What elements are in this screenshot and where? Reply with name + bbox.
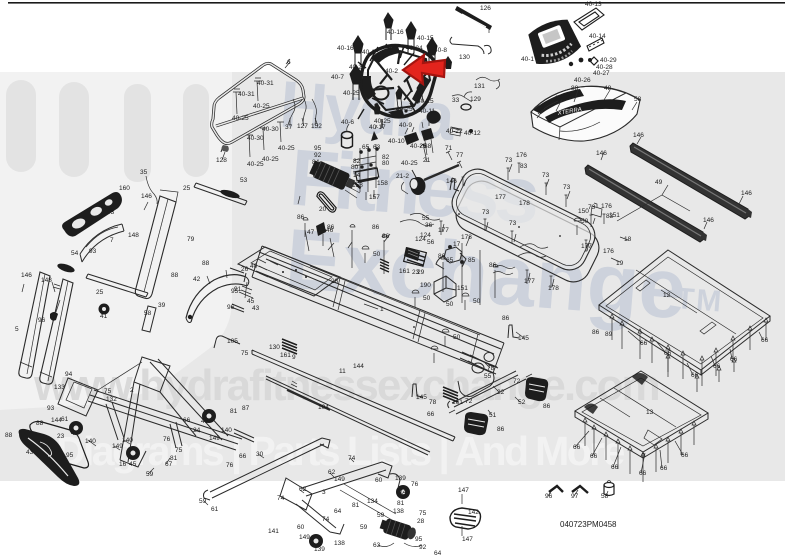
svg-text:144: 144 — [353, 363, 364, 370]
svg-text:78: 78 — [429, 399, 437, 406]
svg-text:42: 42 — [193, 276, 201, 283]
svg-text:140: 140 — [122, 437, 133, 444]
svg-text:40-24: 40-24 — [349, 64, 366, 71]
svg-text:75: 75 — [104, 388, 112, 395]
svg-text:52: 52 — [518, 399, 526, 406]
svg-text:20: 20 — [319, 206, 327, 213]
svg-text:63: 63 — [373, 144, 381, 151]
svg-text:40-15: 40-15 — [417, 35, 434, 42]
svg-text:40-29: 40-29 — [600, 57, 617, 64]
svg-text:141: 141 — [268, 528, 279, 535]
svg-text:50: 50 — [581, 218, 589, 225]
svg-text:161: 161 — [399, 268, 410, 275]
svg-text:88: 88 — [202, 260, 210, 267]
svg-text:65: 65 — [446, 257, 454, 264]
svg-text:33: 33 — [452, 97, 460, 104]
svg-text:75: 75 — [241, 350, 249, 357]
svg-text:88: 88 — [537, 105, 545, 112]
svg-text:9: 9 — [292, 354, 296, 361]
svg-text:27: 27 — [312, 166, 320, 173]
svg-text:81: 81 — [230, 408, 238, 415]
svg-text:55: 55 — [484, 373, 492, 380]
svg-text:61: 61 — [211, 506, 219, 513]
svg-text:75: 75 — [419, 510, 427, 517]
svg-text:59: 59 — [360, 524, 368, 531]
svg-text:40-15: 40-15 — [362, 49, 379, 56]
svg-text:40-30: 40-30 — [247, 135, 264, 142]
svg-text:66: 66 — [664, 350, 672, 357]
svg-text:84: 84 — [312, 159, 320, 166]
svg-text:45: 45 — [201, 418, 209, 425]
svg-text:150: 150 — [578, 208, 589, 215]
svg-text:22: 22 — [497, 389, 505, 396]
svg-text:178: 178 — [519, 200, 530, 207]
svg-text:40-9: 40-9 — [399, 122, 412, 129]
svg-text:40-25: 40-25 — [401, 160, 418, 167]
svg-text:5: 5 — [15, 326, 19, 333]
svg-text:40-31: 40-31 — [238, 91, 255, 98]
svg-text:16: 16 — [119, 461, 127, 468]
svg-text:43: 43 — [252, 305, 260, 312]
svg-text:126: 126 — [480, 5, 491, 12]
svg-text:26: 26 — [241, 266, 249, 273]
svg-text:58: 58 — [144, 310, 152, 317]
svg-text:40-7: 40-7 — [331, 74, 344, 81]
svg-text:50: 50 — [446, 301, 454, 308]
svg-text:50: 50 — [453, 334, 461, 341]
svg-text:40-25: 40-25 — [343, 90, 360, 97]
svg-text:66: 66 — [761, 337, 769, 344]
svg-text:3: 3 — [322, 489, 326, 496]
svg-text:93: 93 — [89, 248, 97, 255]
svg-text:92: 92 — [419, 544, 427, 551]
svg-text:151: 151 — [457, 285, 468, 292]
svg-text:88: 88 — [571, 85, 579, 92]
svg-text:37: 37 — [285, 124, 293, 131]
svg-text:146: 146 — [633, 132, 644, 139]
svg-text:95: 95 — [66, 452, 74, 459]
svg-text:50: 50 — [473, 298, 481, 305]
svg-text:148: 148 — [128, 232, 139, 239]
svg-text:45: 45 — [71, 430, 79, 437]
svg-text:54: 54 — [71, 250, 79, 257]
svg-text:76: 76 — [226, 462, 234, 469]
svg-text:40-6: 40-6 — [341, 119, 354, 126]
svg-text:96: 96 — [38, 317, 46, 324]
svg-text:66: 66 — [183, 417, 191, 424]
svg-text:040723PM0458: 040723PM0458 — [560, 520, 617, 529]
svg-text:50: 50 — [373, 251, 381, 258]
svg-text:12: 12 — [663, 292, 671, 299]
svg-text:66: 66 — [590, 453, 598, 460]
svg-text:21-2: 21-2 — [396, 173, 409, 180]
svg-text:65: 65 — [362, 144, 370, 151]
svg-text:62: 62 — [299, 486, 307, 493]
svg-text:13: 13 — [646, 409, 654, 416]
svg-text:40-22: 40-22 — [446, 128, 463, 135]
svg-text:177: 177 — [524, 278, 535, 285]
svg-text:86: 86 — [592, 329, 600, 336]
svg-text:14: 14 — [353, 172, 361, 179]
svg-text:72: 72 — [513, 378, 521, 385]
svg-text:86: 86 — [372, 224, 380, 231]
svg-text:85: 85 — [468, 257, 476, 264]
svg-text:63: 63 — [373, 542, 381, 549]
svg-text:160: 160 — [119, 185, 130, 192]
svg-text:43: 43 — [26, 449, 34, 456]
svg-text:73: 73 — [509, 220, 517, 227]
svg-text:40-11: 40-11 — [419, 108, 436, 115]
svg-text:104: 104 — [318, 404, 329, 411]
svg-text:86: 86 — [489, 262, 497, 269]
svg-text:60: 60 — [375, 477, 383, 484]
svg-text:40-17: 40-17 — [369, 124, 386, 131]
svg-text:40-25: 40-25 — [396, 106, 413, 113]
svg-text:95: 95 — [231, 288, 239, 295]
svg-text:88: 88 — [424, 143, 432, 150]
svg-text:47: 47 — [307, 229, 315, 236]
svg-text:1: 1 — [380, 306, 384, 313]
svg-text:64: 64 — [434, 550, 442, 557]
svg-text:93: 93 — [47, 405, 55, 412]
svg-text:86: 86 — [382, 233, 390, 240]
svg-text:72: 72 — [465, 398, 473, 405]
svg-text:29: 29 — [417, 269, 425, 276]
svg-text:74: 74 — [277, 495, 285, 502]
svg-text:40-8: 40-8 — [434, 47, 447, 54]
svg-text:23: 23 — [57, 433, 65, 440]
svg-text:59: 59 — [146, 471, 154, 478]
svg-text:146: 146 — [596, 150, 607, 157]
svg-text:133: 133 — [54, 384, 65, 391]
svg-text:88: 88 — [171, 272, 179, 279]
svg-text:74: 74 — [322, 516, 330, 523]
svg-text:58: 58 — [634, 96, 642, 103]
svg-text:73: 73 — [563, 184, 571, 191]
svg-text:149: 149 — [334, 476, 345, 483]
svg-text:40-16: 40-16 — [337, 45, 354, 52]
svg-text:46: 46 — [326, 227, 334, 234]
svg-text:40-1: 40-1 — [521, 56, 534, 63]
svg-text:96: 96 — [545, 493, 553, 500]
svg-text:56: 56 — [427, 239, 435, 246]
svg-text:80: 80 — [382, 160, 390, 167]
svg-text:40-10: 40-10 — [388, 138, 405, 145]
svg-text:53: 53 — [240, 177, 248, 184]
svg-text:66: 66 — [681, 452, 689, 459]
svg-text:66: 66 — [730, 356, 738, 363]
svg-text:78: 78 — [487, 365, 495, 372]
svg-text:40: 40 — [250, 263, 258, 270]
svg-text:158: 158 — [352, 182, 363, 189]
svg-text:105: 105 — [227, 338, 238, 345]
svg-text:66: 66 — [640, 340, 648, 347]
svg-text:158: 158 — [377, 180, 388, 187]
svg-text:60: 60 — [297, 524, 305, 531]
svg-text:58: 58 — [601, 493, 609, 500]
svg-text:64: 64 — [334, 508, 342, 515]
svg-text:178: 178 — [461, 234, 472, 241]
svg-text:177: 177 — [495, 194, 506, 201]
svg-text:94: 94 — [65, 371, 73, 378]
svg-text:74: 74 — [399, 489, 407, 496]
svg-text:25: 25 — [96, 289, 104, 296]
svg-text:97: 97 — [571, 493, 579, 500]
svg-text:73: 73 — [482, 209, 490, 216]
svg-text:127: 127 — [297, 123, 308, 130]
svg-text:25: 25 — [183, 185, 191, 192]
svg-text:66: 66 — [639, 470, 647, 477]
svg-text:21: 21 — [423, 157, 431, 164]
svg-text:66: 66 — [691, 372, 699, 379]
svg-text:81: 81 — [352, 502, 360, 509]
svg-text:139: 139 — [314, 546, 325, 553]
svg-text:177: 177 — [581, 243, 592, 250]
svg-text:28: 28 — [331, 278, 339, 285]
svg-text:17: 17 — [453, 241, 461, 248]
svg-text:190: 190 — [420, 282, 431, 289]
svg-text:50: 50 — [423, 295, 431, 302]
svg-text:130: 130 — [459, 54, 470, 61]
svg-text:138: 138 — [334, 540, 345, 547]
svg-text:TM: TM — [675, 282, 725, 319]
svg-text:77: 77 — [456, 152, 464, 159]
svg-text:93: 93 — [107, 209, 115, 216]
svg-text:88: 88 — [5, 432, 13, 439]
svg-text:40-25: 40-25 — [417, 98, 434, 105]
svg-text:81: 81 — [170, 455, 178, 462]
svg-text:142: 142 — [468, 509, 479, 516]
svg-text:35: 35 — [140, 169, 148, 176]
svg-text:Diagrams | Parts Lists | And M: Diagrams | Parts Lists | And More — [56, 428, 625, 474]
svg-text:55: 55 — [422, 215, 430, 222]
svg-text:146: 146 — [446, 178, 457, 185]
svg-text:176: 176 — [601, 203, 612, 210]
svg-text:76: 76 — [163, 436, 171, 443]
svg-text:62: 62 — [328, 469, 336, 476]
svg-text:11: 11 — [339, 368, 346, 375]
svg-text:80: 80 — [351, 164, 359, 171]
svg-text:86: 86 — [543, 403, 551, 410]
svg-text:147: 147 — [458, 487, 469, 494]
svg-text:86: 86 — [497, 426, 505, 433]
svg-text:40-13: 40-13 — [585, 1, 602, 8]
svg-text:51: 51 — [489, 412, 497, 419]
svg-text:66: 66 — [427, 411, 435, 418]
svg-text:40-25: 40-25 — [262, 156, 279, 163]
svg-text:59: 59 — [199, 498, 207, 505]
svg-text:40-24: 40-24 — [406, 45, 423, 52]
svg-text:75: 75 — [175, 447, 183, 454]
svg-text:176: 176 — [603, 248, 614, 255]
svg-text:177: 177 — [438, 227, 449, 234]
svg-text:95: 95 — [415, 536, 423, 543]
svg-text:88: 88 — [36, 420, 44, 427]
svg-text:39: 39 — [158, 302, 166, 309]
svg-text:138: 138 — [393, 508, 404, 515]
svg-text:73: 73 — [542, 172, 550, 179]
svg-text:139: 139 — [395, 475, 406, 482]
svg-text:40-26: 40-26 — [574, 77, 591, 84]
svg-text:18: 18 — [624, 236, 632, 243]
svg-text:151: 151 — [609, 212, 620, 219]
svg-text:40-27: 40-27 — [593, 70, 610, 77]
svg-text:66: 66 — [611, 464, 619, 471]
svg-text:145: 145 — [518, 335, 529, 342]
svg-text:66: 66 — [573, 444, 581, 451]
svg-text:30: 30 — [256, 451, 264, 458]
svg-text:147: 147 — [462, 536, 473, 543]
svg-text:87: 87 — [242, 405, 250, 412]
svg-text:2: 2 — [130, 387, 134, 394]
svg-text:66: 66 — [713, 363, 721, 370]
svg-text:36: 36 — [425, 222, 433, 229]
svg-text:7: 7 — [110, 237, 114, 244]
svg-text:61: 61 — [61, 416, 69, 423]
svg-text:45: 45 — [129, 461, 137, 468]
svg-text:49: 49 — [655, 179, 663, 186]
svg-text:73: 73 — [505, 157, 513, 164]
svg-text:79: 79 — [187, 236, 195, 243]
svg-text:66: 66 — [660, 465, 668, 472]
svg-text:149: 149 — [209, 435, 220, 442]
svg-text:128: 128 — [216, 157, 227, 164]
svg-text:40-16: 40-16 — [387, 29, 404, 36]
svg-text:96: 96 — [227, 304, 235, 311]
svg-text:41: 41 — [100, 313, 108, 320]
svg-text:146: 146 — [21, 272, 32, 279]
svg-text:130: 130 — [269, 344, 280, 351]
svg-text:140: 140 — [221, 427, 232, 434]
svg-text:146: 146 — [703, 217, 714, 224]
svg-text:48: 48 — [604, 85, 612, 92]
svg-text:149: 149 — [112, 443, 123, 450]
svg-text:88: 88 — [555, 95, 563, 102]
svg-text:134: 134 — [367, 498, 378, 505]
svg-text:152: 152 — [311, 123, 322, 130]
svg-text:73: 73 — [588, 204, 596, 211]
svg-text:40-25: 40-25 — [253, 103, 270, 110]
svg-text:146: 146 — [741, 190, 752, 197]
svg-text:40-30: 40-30 — [262, 126, 279, 133]
svg-text:81: 81 — [397, 500, 405, 507]
svg-text:www.hydrafitnessexchange.com: www.hydrafitnessexchange.com — [33, 361, 659, 410]
svg-text:124: 124 — [420, 232, 431, 239]
svg-text:24: 24 — [193, 427, 201, 434]
svg-text:40-12: 40-12 — [464, 130, 481, 137]
svg-text:132: 132 — [106, 396, 117, 403]
svg-text:161: 161 — [280, 352, 291, 359]
svg-text:95: 95 — [314, 145, 322, 152]
svg-text:6: 6 — [287, 59, 291, 66]
svg-text:74: 74 — [348, 455, 356, 462]
svg-text:66: 66 — [239, 453, 247, 460]
svg-text:40-2: 40-2 — [385, 68, 398, 75]
svg-text:86: 86 — [438, 253, 446, 260]
svg-text:40-14: 40-14 — [589, 33, 606, 40]
svg-text:40-25: 40-25 — [232, 115, 249, 122]
svg-text:40-25: 40-25 — [278, 145, 295, 152]
svg-text:83: 83 — [520, 163, 528, 170]
svg-text:89: 89 — [605, 331, 613, 338]
svg-text:157: 157 — [369, 194, 380, 201]
svg-text:176: 176 — [516, 152, 527, 159]
svg-text:59: 59 — [377, 512, 385, 519]
svg-text:146: 146 — [141, 193, 152, 200]
svg-text:40-31: 40-31 — [257, 80, 274, 87]
svg-text:129: 129 — [470, 96, 481, 103]
svg-text:178: 178 — [548, 285, 559, 292]
svg-text:67: 67 — [165, 461, 173, 468]
svg-text:140: 140 — [85, 438, 96, 445]
svg-text:92: 92 — [314, 152, 322, 159]
svg-text:145: 145 — [416, 394, 427, 401]
svg-text:131: 131 — [474, 83, 485, 90]
svg-text:76: 76 — [411, 481, 419, 488]
svg-text:28: 28 — [417, 518, 425, 525]
svg-text:148: 148 — [41, 277, 52, 284]
svg-text:45: 45 — [247, 298, 255, 305]
svg-text:149: 149 — [299, 534, 310, 541]
svg-text:161: 161 — [452, 399, 463, 406]
svg-text:86: 86 — [502, 315, 510, 322]
svg-text:19: 19 — [616, 260, 624, 267]
svg-text:71: 71 — [445, 145, 453, 152]
svg-text:86: 86 — [297, 214, 305, 221]
